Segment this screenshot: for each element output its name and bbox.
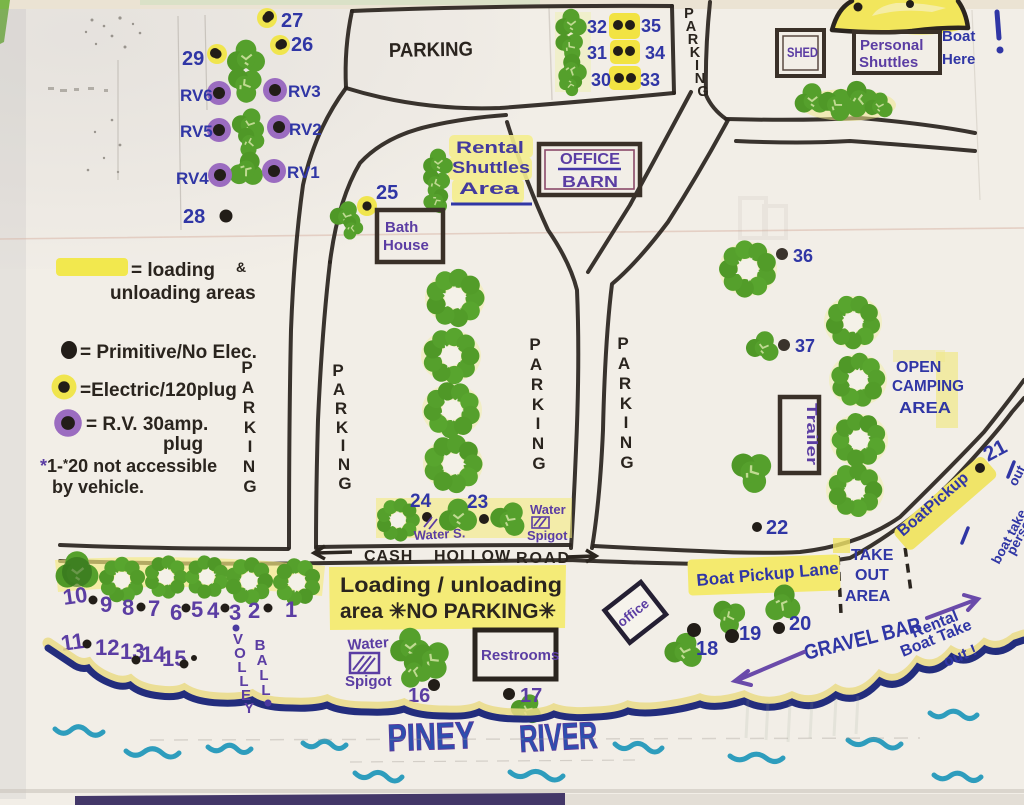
svg-text:4: 4 <box>207 598 220 623</box>
svg-text:OPEN: OPEN <box>896 359 941 376</box>
svg-text:I: I <box>536 414 541 433</box>
svg-text:OUT: OUT <box>855 567 889 584</box>
svg-text:A: A <box>530 355 542 374</box>
svg-text:Water S.: Water S. <box>413 525 465 543</box>
svg-text:1: 1 <box>285 597 297 622</box>
svg-text:30: 30 <box>591 70 611 90</box>
svg-text:A: A <box>333 380 345 399</box>
svg-text:SHED: SHED <box>787 44 818 60</box>
svg-text:RV4: RV4 <box>176 169 209 188</box>
svg-text:26: 26 <box>291 34 313 56</box>
svg-text:I: I <box>341 436 346 455</box>
svg-text:PINEY: PINEY <box>387 715 475 760</box>
svg-text:G: G <box>532 454 545 473</box>
svg-text:22: 22 <box>766 517 788 539</box>
svg-text:House: House <box>383 237 429 254</box>
svg-text:N: N <box>338 455 350 474</box>
svg-text:G: G <box>338 474 351 493</box>
svg-text:HOLLOW: HOLLOW <box>434 548 511 565</box>
svg-text:G: G <box>243 477 256 496</box>
svg-text:6: 6 <box>170 600 182 625</box>
svg-text:A: A <box>618 354 630 373</box>
svg-text:9: 9 <box>100 592 112 617</box>
svg-text:2: 2 <box>248 598 260 623</box>
svg-text:N: N <box>620 433 632 452</box>
svg-text:Restrooms: Restrooms <box>481 647 559 664</box>
svg-text:P: P <box>529 335 540 354</box>
svg-text:= Primitive/No Elec.: = Primitive/No Elec. <box>80 342 257 363</box>
svg-text:24: 24 <box>410 491 432 512</box>
svg-text:G: G <box>697 84 708 100</box>
svg-text:plug: plug <box>163 434 203 455</box>
svg-text:29: 29 <box>182 48 204 70</box>
svg-text:N: N <box>532 434 544 453</box>
svg-text:R: R <box>335 399 347 418</box>
svg-text:32: 32 <box>587 17 607 37</box>
svg-text:= R.V. 30amp.: = R.V. 30amp. <box>86 414 208 435</box>
svg-text:Boat: Boat <box>942 28 975 45</box>
svg-text:Loading / unloading: Loading / unloading <box>340 574 562 597</box>
svg-text:AREA: AREA <box>845 588 891 605</box>
svg-text:R: R <box>619 374 631 393</box>
svg-text:18: 18 <box>696 638 718 660</box>
svg-text:PARKING: PARKING <box>389 39 473 62</box>
svg-text:28: 28 <box>183 206 205 228</box>
svg-text:Shuttles: Shuttles <box>452 158 530 177</box>
svg-text:10: 10 <box>61 582 89 610</box>
svg-text:Water: Water <box>347 634 389 654</box>
svg-text:17: 17 <box>520 685 542 707</box>
svg-text:RV6: RV6 <box>180 86 213 105</box>
svg-text:BARN: BARN <box>562 174 618 191</box>
svg-text:=Electric/120plug: =Electric/120plug <box>80 380 237 401</box>
svg-text:3: 3 <box>229 600 241 625</box>
svg-text:RV5: RV5 <box>180 122 213 141</box>
svg-text:R: R <box>531 375 543 394</box>
svg-text:L: L <box>261 682 270 699</box>
svg-text:33: 33 <box>640 70 660 90</box>
svg-text:Y: Y <box>244 700 254 717</box>
svg-text:Here: Here <box>942 51 975 68</box>
svg-text:RIVER: RIVER <box>518 715 598 761</box>
svg-text:RV2: RV2 <box>289 120 322 139</box>
svg-text:Shuttles: Shuttles <box>859 54 918 71</box>
svg-text:I: I <box>624 413 629 432</box>
svg-text:CAMPING: CAMPING <box>892 378 964 395</box>
svg-text:RV3: RV3 <box>288 82 321 101</box>
svg-text:34: 34 <box>645 43 665 63</box>
svg-text:Personal: Personal <box>860 37 923 54</box>
svg-text:&: & <box>236 259 246 275</box>
svg-text:5: 5 <box>191 597 203 622</box>
svg-text:20: 20 <box>789 613 811 635</box>
svg-text:Bath: Bath <box>385 219 418 236</box>
svg-text:A: A <box>242 378 254 397</box>
svg-text:K: K <box>244 418 257 437</box>
svg-text:area ✳NO PARKING✳: area ✳NO PARKING✳ <box>340 600 556 623</box>
svg-text:CASH: CASH <box>364 548 413 565</box>
svg-text:K: K <box>620 394 633 413</box>
svg-text:K: K <box>532 395 545 414</box>
svg-text:Trailer: Trailer <box>803 403 820 465</box>
svg-text:N: N <box>243 457 255 476</box>
svg-text:12: 12 <box>95 635 119 660</box>
svg-text:unloading areas: unloading areas <box>110 283 256 304</box>
svg-text:K: K <box>336 418 349 437</box>
svg-text:Rental: Rental <box>456 138 524 157</box>
svg-text:8: 8 <box>122 595 134 620</box>
svg-text:P: P <box>332 361 343 380</box>
svg-text:RV1: RV1 <box>287 163 320 182</box>
svg-text:AREA: AREA <box>899 400 952 417</box>
svg-text:Spigot: Spigot <box>527 528 568 543</box>
svg-text:27: 27 <box>281 10 303 32</box>
svg-text:31: 31 <box>587 43 607 63</box>
svg-text:Spigot: Spigot <box>345 673 392 690</box>
svg-text:36: 36 <box>793 246 813 266</box>
svg-text:19: 19 <box>739 623 761 645</box>
svg-text:35: 35 <box>641 16 661 36</box>
svg-text:TAKE: TAKE <box>851 547 894 564</box>
svg-text:R: R <box>243 398 255 417</box>
svg-text:37: 37 <box>795 336 815 356</box>
svg-text:= loading: = loading <box>131 260 215 281</box>
svg-text:G: G <box>620 453 633 472</box>
svg-text:23: 23 <box>467 492 488 513</box>
svg-text:P: P <box>617 334 628 353</box>
svg-text:by vehicle.: by vehicle. <box>52 477 144 497</box>
svg-text:OFFICE: OFFICE <box>560 151 620 168</box>
svg-text:I: I <box>248 437 253 456</box>
svg-text:Water: Water <box>530 502 566 517</box>
svg-text:Area: Area <box>459 179 520 198</box>
svg-text:25: 25 <box>376 182 398 204</box>
svg-text:ROAD: ROAD <box>516 550 571 567</box>
svg-text:7: 7 <box>148 596 160 621</box>
